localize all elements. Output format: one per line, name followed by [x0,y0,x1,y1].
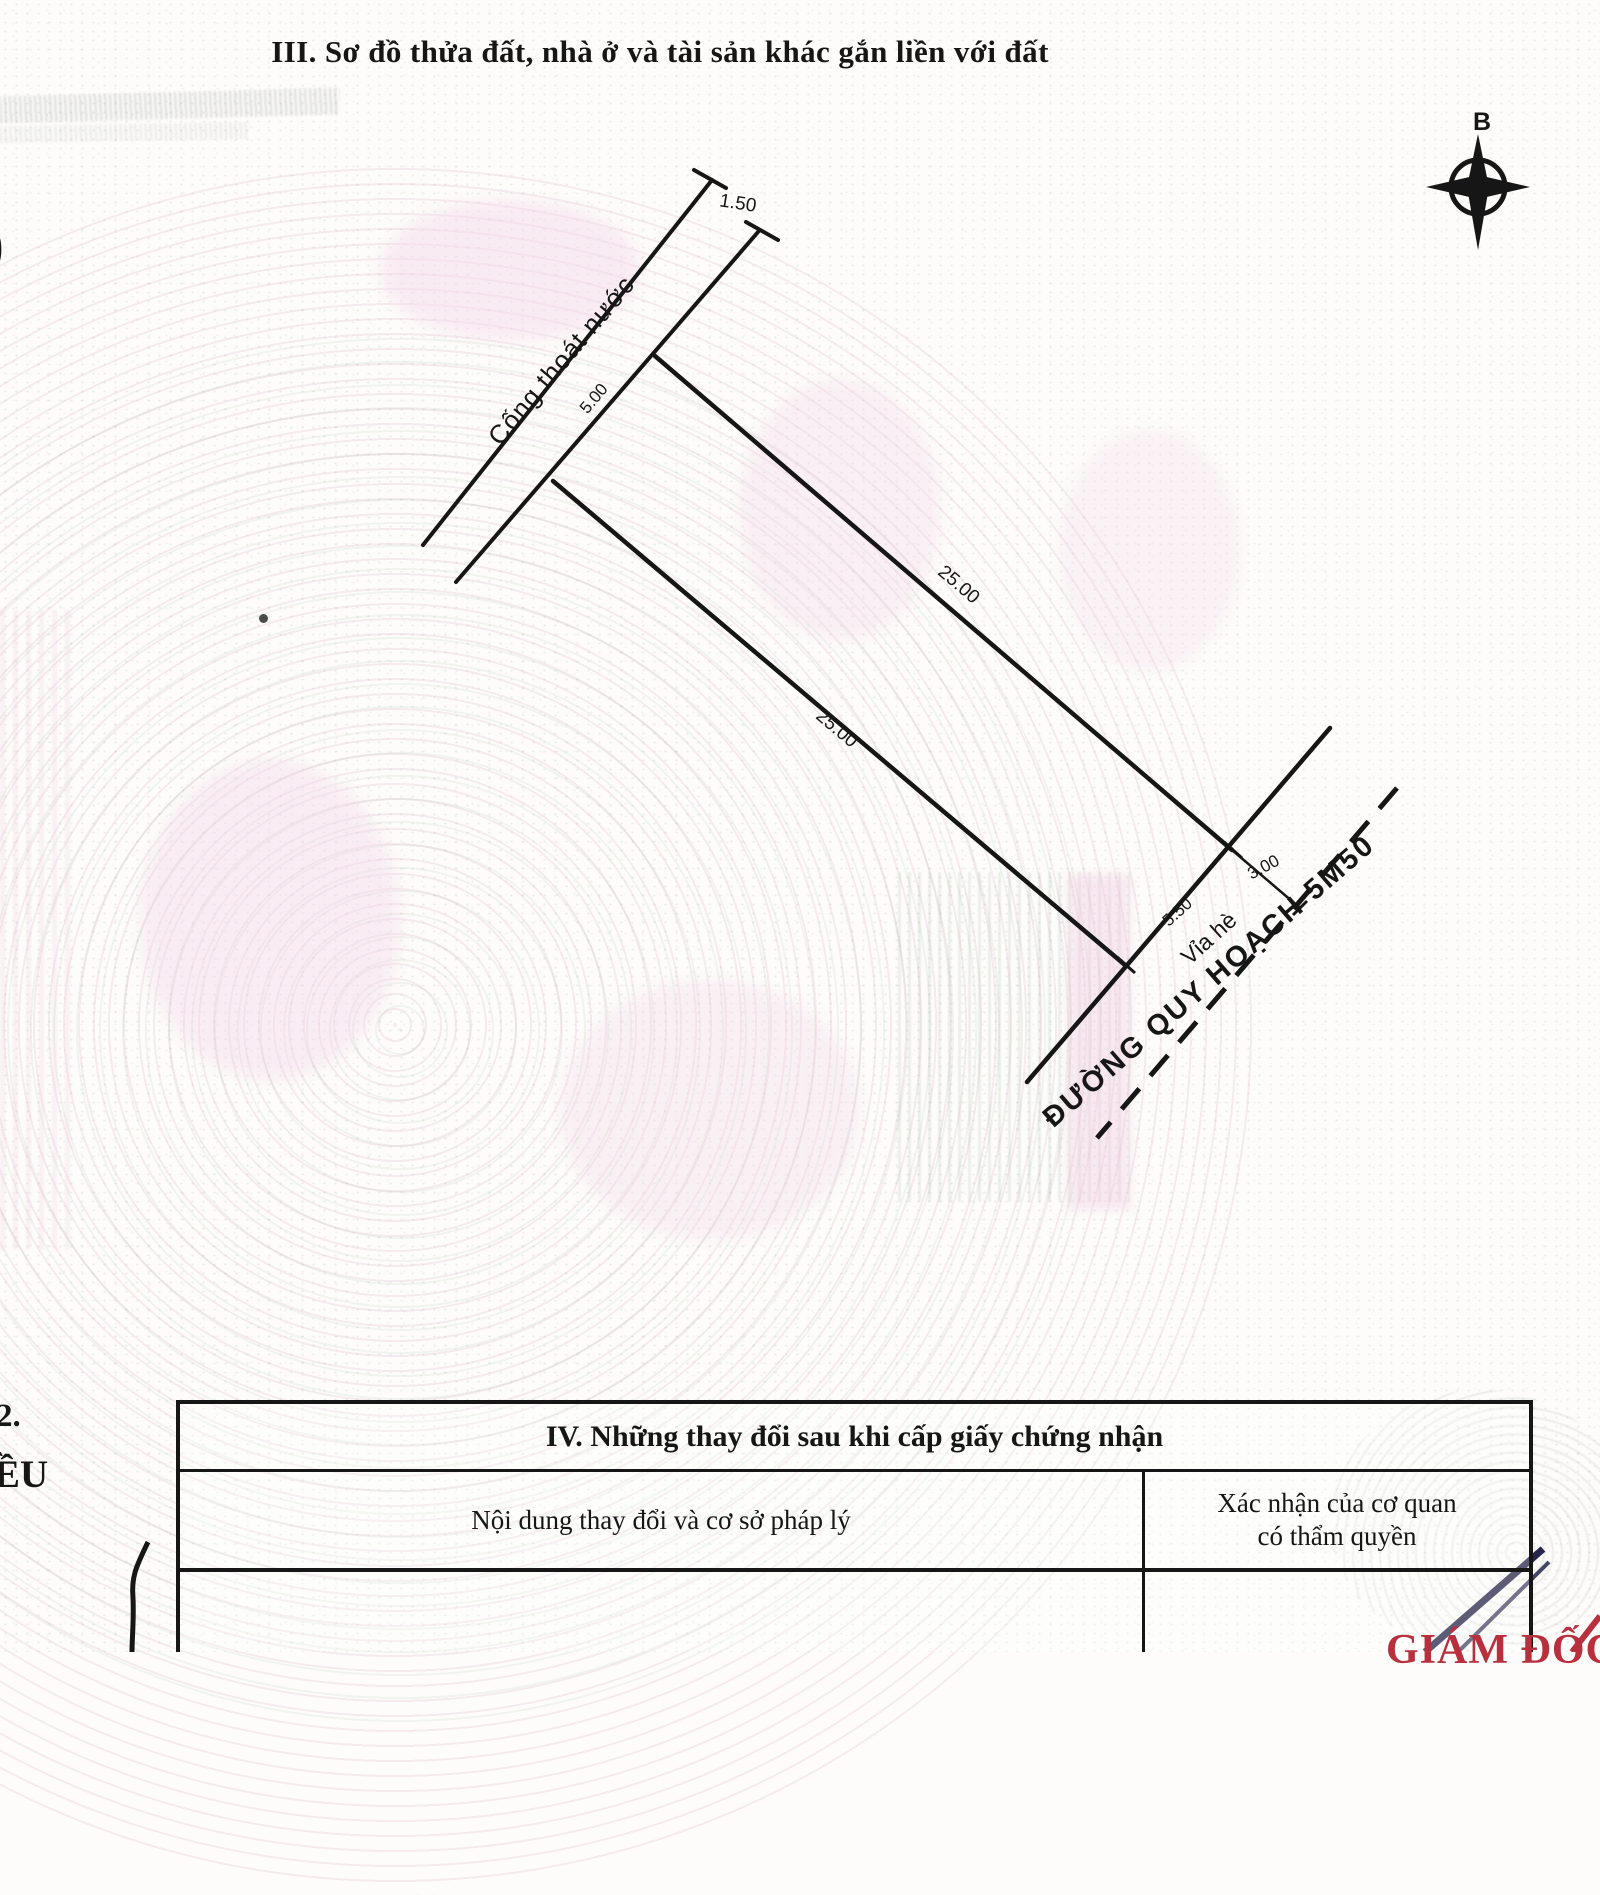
changes-table-empty-row [180,1572,1529,1652]
changes-table-empty-cell-1 [180,1572,1145,1652]
changes-table: IV. Những thay đổi sau khi cấp giấy chứn… [176,1400,1533,1652]
rear-edge-dimension: 5.00 [576,380,612,418]
sidewalk-width-dimension: 3.00 [1244,851,1282,883]
changes-table-header-row: Nội dung thay đổi và cơ sở pháp lý Xác n… [180,1472,1529,1572]
compass-north-label: B [1473,108,1491,136]
lower-side-dimension: 25.00 [812,705,862,752]
director-red-caption: GIÁM ĐỐC [1386,1626,1600,1674]
col2-header-line2: có thẩm quyền [1258,1520,1417,1553]
changes-table-col2-header: Xác nhận của cơ quan có thẩm quyền [1145,1472,1529,1568]
changes-table-col1-header: Nội dung thay đổi và cơ sở pháp lý [180,1472,1145,1568]
scan-edge-stroke [132,1542,148,1652]
col2-header-line1: Xác nhận của cơ quan [1217,1487,1456,1520]
north-compass-icon [1426,134,1530,250]
changes-table-title: IV. Những thay đổi sau khi cấp giấy chứn… [180,1404,1529,1472]
drain-label: Cống thoát nước [482,270,641,451]
drain-width-dimension: 1.50 [718,190,758,217]
